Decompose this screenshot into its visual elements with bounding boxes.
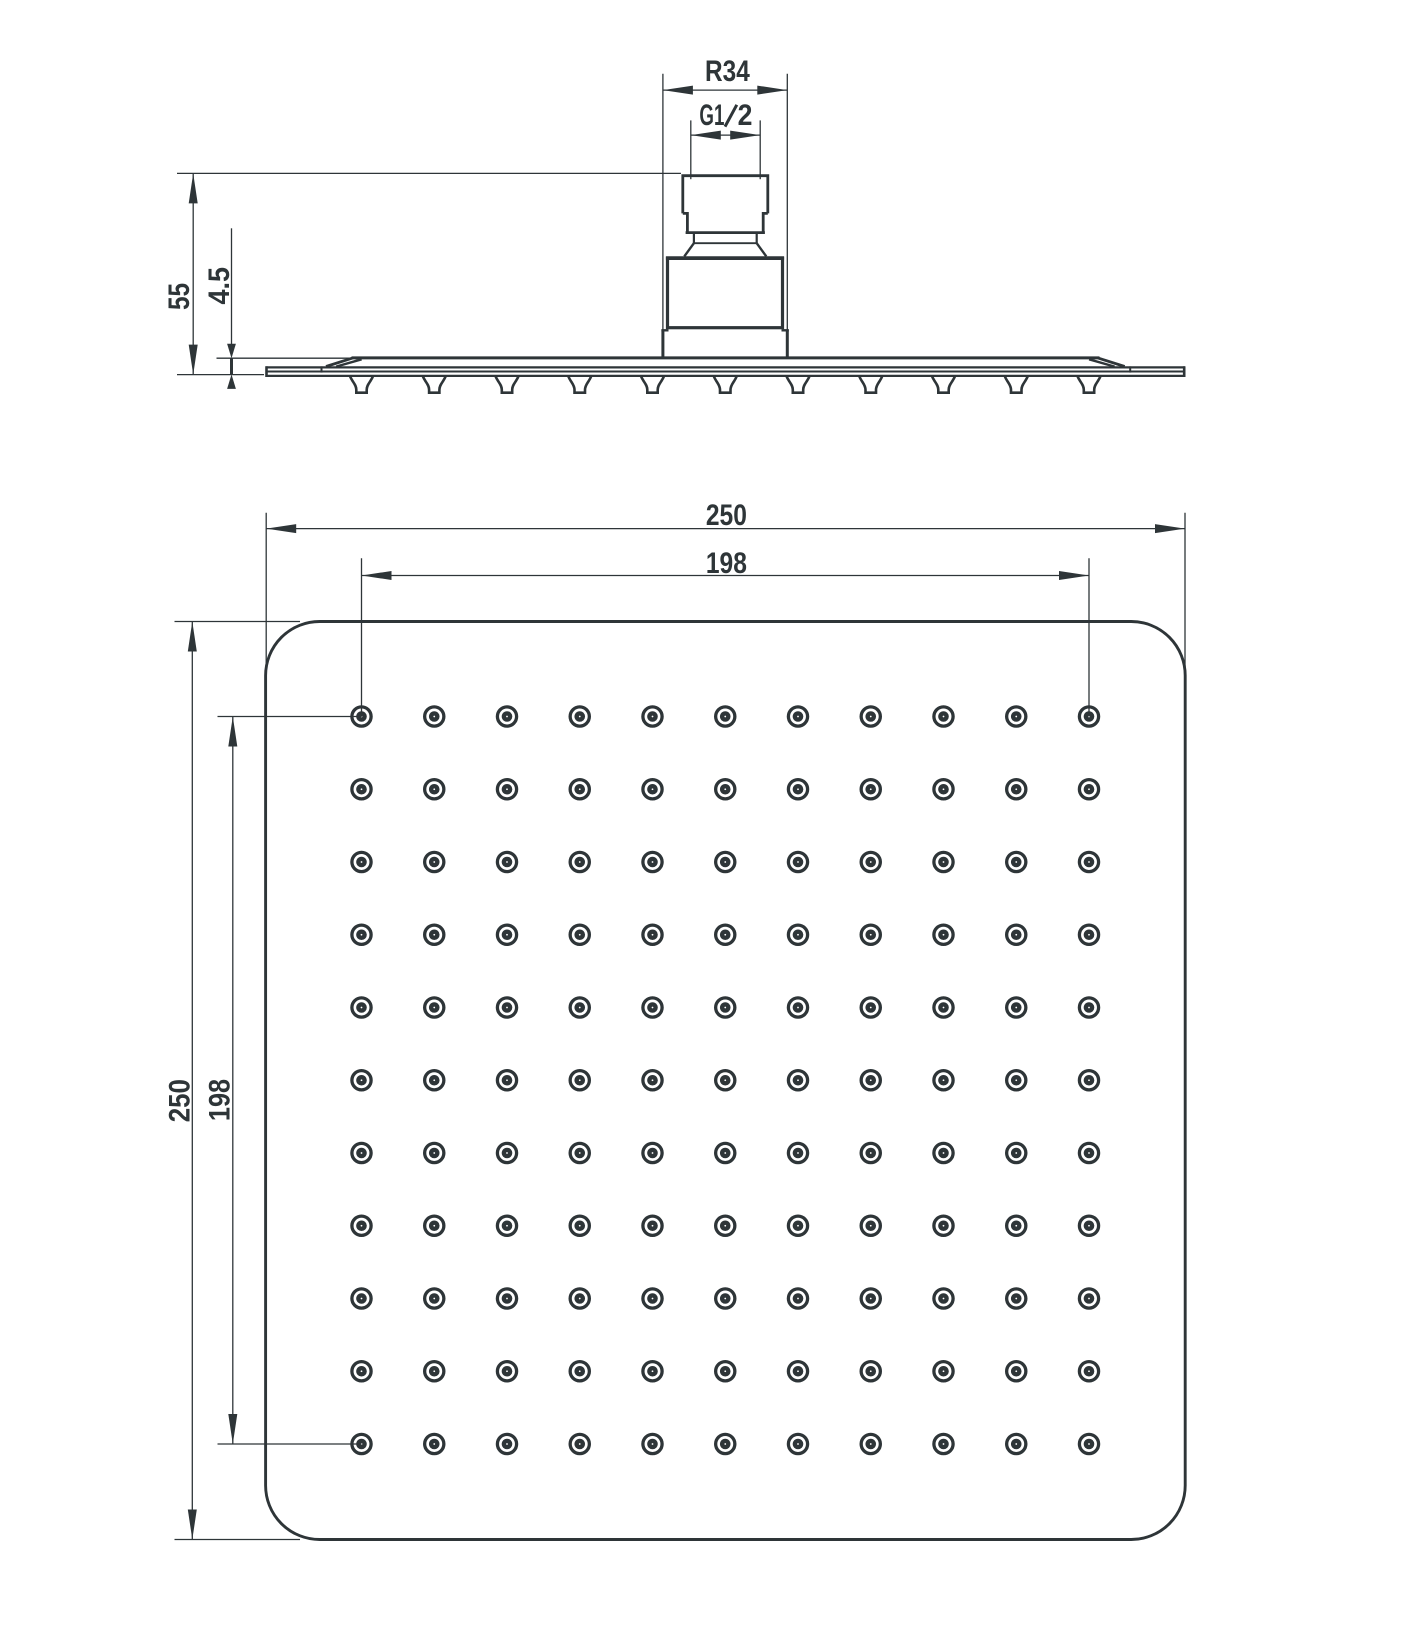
svg-text:2: 2 [738,99,753,132]
svg-text:198: 198 [204,1079,237,1121]
svg-text:R34: R34 [705,55,750,88]
svg-text:G1: G1 [699,99,724,132]
svg-text:250: 250 [163,1079,196,1122]
svg-text:4.5: 4.5 [203,267,236,305]
svg-text:250: 250 [706,499,747,532]
svg-text:55: 55 [163,283,196,310]
svg-text:198: 198 [706,547,747,580]
